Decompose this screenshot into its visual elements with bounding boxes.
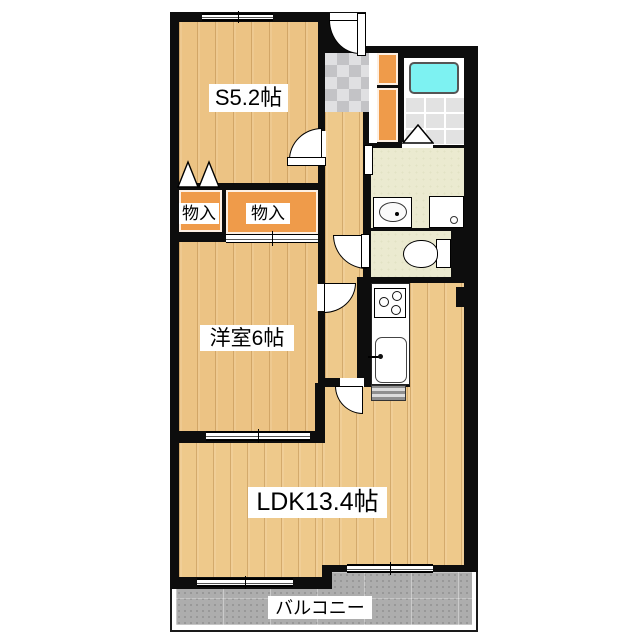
entrance-door-leaf: [357, 13, 366, 56]
ldk-center: [322, 387, 410, 565]
shoe-cabinet-front: [369, 53, 377, 143]
toilet-tank: [436, 239, 451, 268]
window-service-room: [202, 13, 273, 21]
toilet-bowl: [403, 240, 438, 268]
hallway-upper: [325, 112, 363, 148]
western-ldk-wall: [315, 383, 325, 443]
toilet-door-leaf: [361, 234, 370, 268]
label-western-room: 洋室6帖: [200, 325, 294, 351]
washroom-sliding-door: [364, 145, 373, 175]
stove-burner-1: [379, 297, 389, 307]
wash-basin: [379, 202, 407, 222]
label-storage-right: 物入: [246, 203, 290, 224]
bathtub: [409, 62, 459, 94]
window-ldk-west: [197, 578, 293, 587]
closet-sliding-door: [226, 234, 318, 243]
washer-drain: [450, 216, 458, 224]
sink-faucet-dot: [378, 354, 383, 359]
counter-appliance: [371, 385, 406, 401]
basin-faucet-dot: [395, 212, 399, 216]
label-service-room: S5.2帖: [209, 84, 288, 112]
shoe-cabinet-upper: [377, 53, 398, 85]
pillar: [456, 287, 470, 307]
stove-burner-3: [391, 305, 401, 315]
window-ldk-east: [347, 564, 433, 573]
label-balcony: バルコニー: [268, 596, 372, 619]
genkan-tile: [325, 53, 369, 112]
service-door-leaf: [287, 157, 326, 166]
ldk-east: [410, 283, 464, 565]
washing-machine-pan: [429, 196, 464, 228]
label-ldk: LDK13.4帖: [248, 487, 387, 518]
outline-notch: [366, 0, 478, 46]
label-storage-left: 物入: [179, 203, 219, 224]
kitchen-sink: [375, 337, 407, 383]
window-western-room: [206, 431, 310, 441]
stove-burner-2: [392, 291, 402, 301]
shoe-cabinet-lower: [377, 88, 398, 142]
floor-plan: S5.2帖 物入 物入 洋室6帖 LDK13.4帖 バルコニー: [0, 0, 640, 640]
bathroom-folding-door-icon: [402, 124, 434, 144]
closet-bifold-door-icon: [177, 160, 221, 188]
